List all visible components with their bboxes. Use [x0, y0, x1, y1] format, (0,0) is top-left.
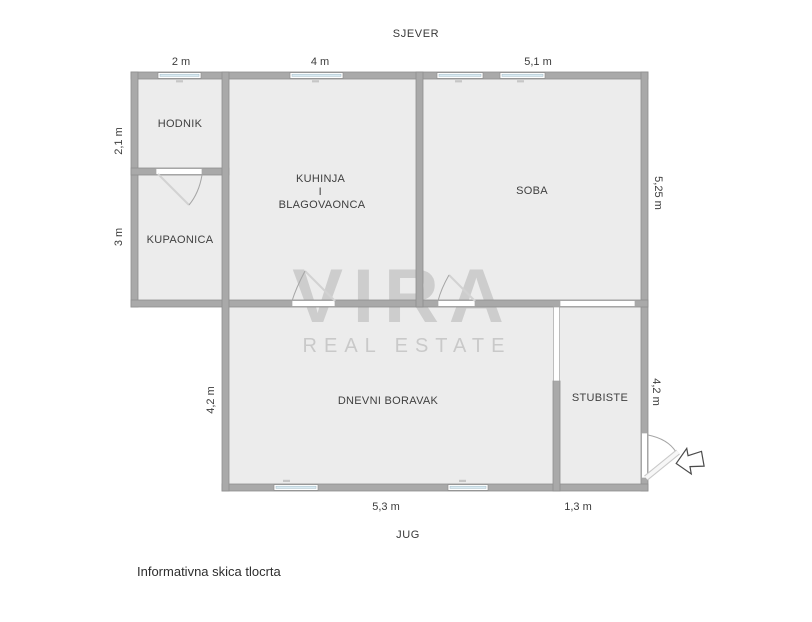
- window-dnevni-1: [274, 485, 318, 491]
- dim-top-hodnik: 2 m: [172, 56, 190, 68]
- plan-caption: Informativna skica tlocrta: [137, 564, 282, 579]
- wall-kuhinja-soba: [416, 72, 423, 307]
- window-tick: [312, 80, 319, 82]
- dim-right-soba: 5,25 m: [652, 176, 664, 210]
- opening-stubiste-top: [560, 301, 635, 307]
- window-soba-2: [500, 73, 545, 79]
- dim-bottom-dnevni: 5,3 m: [372, 501, 400, 513]
- dim-left-hodnik: 2,1 m: [113, 127, 125, 155]
- compass-north-label: SJEVER: [393, 28, 439, 40]
- dim-left-dnevni: 4,2 m: [205, 386, 217, 414]
- wall-east: [641, 72, 648, 491]
- dim-left-kupaonica: 3 m: [113, 228, 125, 246]
- window-tick: [459, 480, 466, 482]
- watermark-tagline: REAL ESTATE: [303, 335, 512, 357]
- window-tick: [455, 80, 462, 82]
- door-opening-kupaonica: [156, 169, 202, 175]
- dim-top-kuhinja: 4 m: [311, 56, 329, 68]
- window-tick: [517, 80, 524, 82]
- window-soba-1: [437, 73, 483, 79]
- window-kuhinja: [290, 73, 343, 79]
- door-opening-entrance: [642, 433, 648, 478]
- wall-west-lower: [222, 72, 229, 491]
- compass-south-label: JUG: [396, 529, 420, 541]
- window-hodnik: [158, 73, 201, 79]
- dim-top-soba: 5,1 m: [524, 56, 552, 68]
- floor-plan-drawing: VIRA REAL ESTATE: [0, 0, 812, 622]
- window-tick: [283, 480, 290, 482]
- room-label-stubiste: STUBISTE: [572, 392, 628, 404]
- wall-west-upper: [131, 72, 138, 307]
- door-opening-kuhinja: [292, 301, 335, 307]
- opening-stubiste-left: [554, 307, 560, 381]
- room-label-dnevni: DNEVNI BORAVAK: [338, 395, 439, 407]
- dim-bottom-stubiste: 1,3 m: [564, 501, 592, 513]
- dim-right-stubiste: 4,2 m: [650, 378, 662, 406]
- wall-north: [131, 72, 648, 79]
- room-label-hodnik: HODNIK: [158, 118, 203, 130]
- room-label-kupaonica: KUPAONICA: [147, 234, 214, 246]
- entrance-arrow-icon: [674, 446, 705, 476]
- door-opening-soba: [438, 301, 475, 307]
- window-tick: [176, 80, 183, 82]
- window-dnevni-2: [448, 485, 488, 491]
- room-label-soba: SOBA: [516, 185, 548, 197]
- watermark-brand: VIRA: [292, 254, 514, 339]
- door-entrance: [646, 435, 678, 478]
- floor-plan: VIRA REAL ESTATE: [0, 0, 812, 622]
- wall-dnevni-stubiste: [553, 381, 560, 491]
